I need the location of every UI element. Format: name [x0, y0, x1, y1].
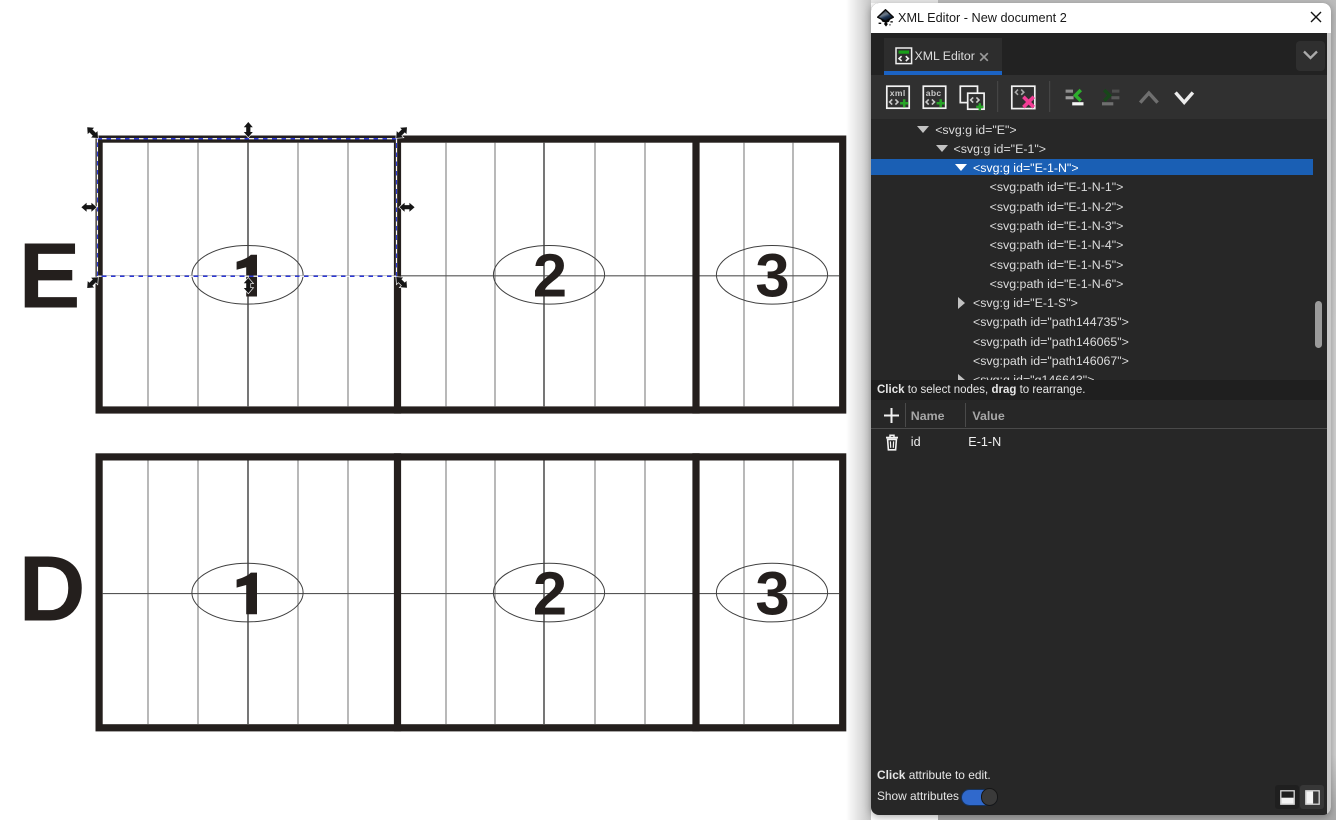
svg-text:xml: xml — [890, 88, 906, 98]
svg-text:3: 3 — [755, 242, 789, 311]
svg-text:D: D — [19, 537, 86, 641]
svg-text:2: 2 — [533, 559, 567, 628]
svg-text:2: 2 — [533, 242, 567, 311]
svg-text:abc: abc — [926, 88, 942, 98]
svg-text:3: 3 — [755, 559, 789, 628]
svg-text:E: E — [19, 224, 81, 328]
